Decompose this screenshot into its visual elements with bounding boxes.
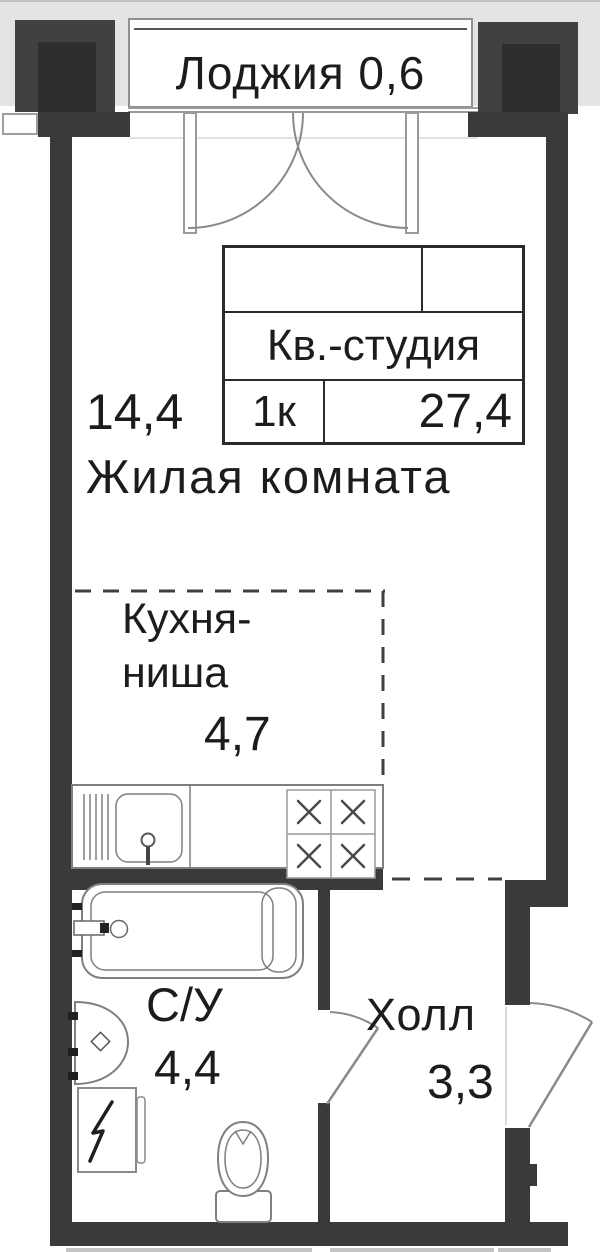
balcony-door-leaf-right (405, 112, 419, 234)
stove-icon (287, 790, 375, 878)
column-right-core (502, 44, 560, 114)
stamp-empty-row (225, 248, 522, 313)
wall-left (50, 135, 72, 1246)
plan-lineart (0, 0, 600, 1252)
bathroom-area: 4,4 (154, 1044, 221, 1094)
stamp-total-area: 27,4 (325, 381, 522, 442)
living-room-area: 14,4 (86, 386, 183, 439)
living-room-label: Жилая комната (86, 452, 451, 501)
wall-bathroom-hall-upper (318, 880, 330, 1010)
kitchen-label-line1: Кухня- (122, 597, 251, 642)
loggia-label: Лоджия 0,6 (176, 46, 426, 100)
balcony-door-swing-icon (188, 113, 408, 228)
neighbor-wall-strip (66, 1248, 312, 1252)
washbasin-icon (68, 1002, 128, 1084)
wall-bottom (50, 1222, 568, 1246)
wall-notch-left (2, 113, 38, 135)
toilet-icon (216, 1122, 271, 1222)
loggia-window-line (128, 107, 478, 113)
stamp-type: Кв.-студия (225, 313, 522, 381)
wall-top-left-stub (38, 112, 130, 137)
electrical-panel-icon (78, 1088, 145, 1172)
kitchen-counter (72, 785, 383, 868)
entrance-door-icon (506, 1003, 592, 1127)
sink-icon (84, 794, 182, 865)
balcony-door-leaf-left (183, 112, 197, 234)
hall-label: Холл (366, 991, 476, 1038)
kitchen-label-line2: ниша (122, 651, 228, 696)
kitchen-area: 4,7 (204, 710, 271, 760)
loggia-label-box: Лоджия 0,6 (128, 18, 473, 108)
column-right (478, 22, 578, 114)
bathroom-label: С/У (146, 980, 223, 1029)
stamp-rooms-count: 1к (225, 381, 325, 442)
wall-right-jog (505, 880, 568, 907)
stamp-empty-cell-right (421, 248, 522, 311)
wall-right-upper (546, 114, 568, 907)
apartment-stamp: Кв.-студия 1к 27,4 (222, 245, 525, 445)
wall-entry-upper (505, 905, 530, 1005)
stamp-bottom-row: 1к 27,4 (225, 381, 522, 442)
wall-door-stop (530, 1164, 537, 1186)
column-left (15, 20, 115, 112)
neighbor-wall-strip (330, 1248, 494, 1252)
bathtub-icon (72, 884, 303, 978)
column-left-core (38, 42, 96, 112)
stamp-empty-cell-left (225, 248, 421, 311)
hall-area: 3,3 (427, 1058, 494, 1108)
floor-plan: Лоджия 0,6 (0, 0, 600, 1252)
wall-kitchen-bathroom (50, 868, 383, 890)
neighbor-wall-strip (498, 1248, 551, 1252)
